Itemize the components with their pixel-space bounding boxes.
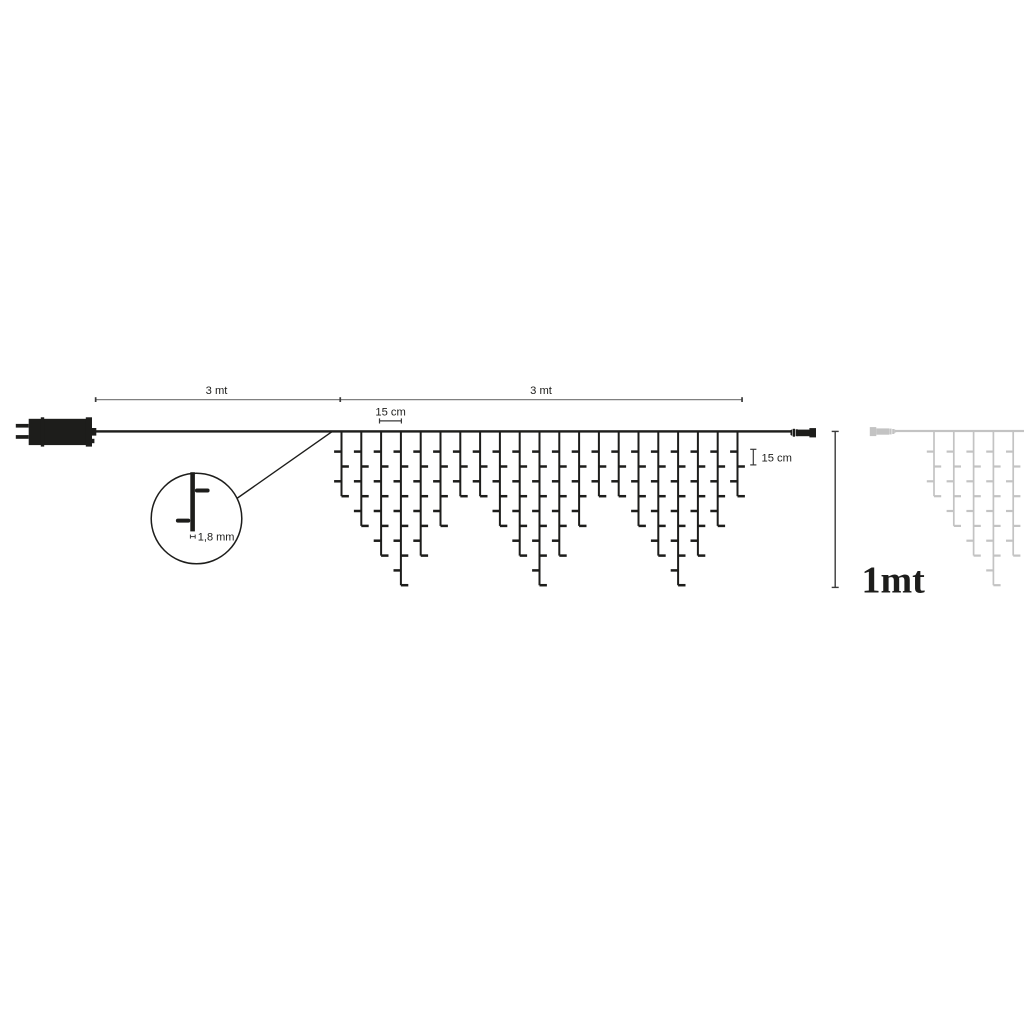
svg-text:1,8 mm: 1,8 mm xyxy=(198,532,235,544)
svg-text:15 cm: 15 cm xyxy=(375,406,405,418)
svg-text:3 mt: 3 mt xyxy=(530,385,553,397)
svg-text:15 cm: 15 cm xyxy=(762,452,792,464)
svg-text:3 mt: 3 mt xyxy=(206,385,229,397)
svg-text:1mt: 1mt xyxy=(862,560,926,602)
